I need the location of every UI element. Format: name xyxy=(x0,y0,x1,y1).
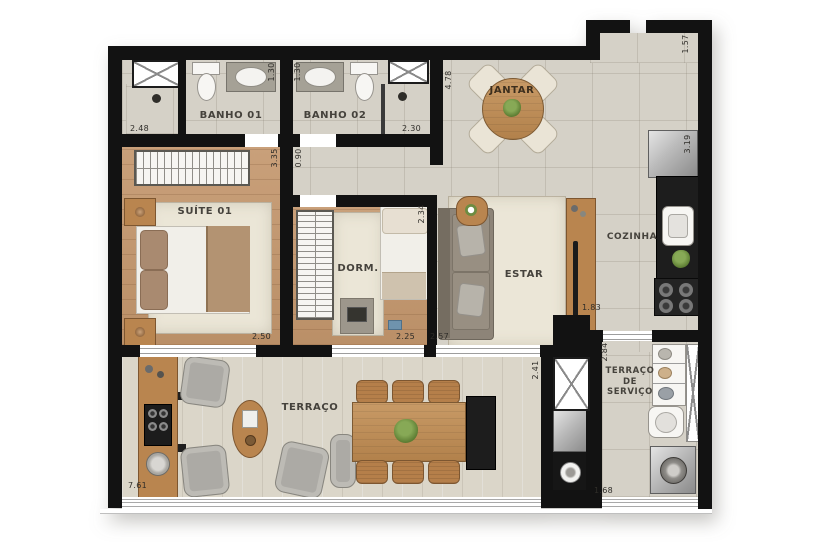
sink-basin xyxy=(235,67,267,87)
dim-jantar-depth: 4.78 xyxy=(444,65,454,95)
sofa-pillow xyxy=(456,283,486,318)
washing-machine xyxy=(650,446,696,494)
room-label-banho01: BANHO 01 xyxy=(196,110,266,123)
wall xyxy=(280,134,293,357)
decor-icon xyxy=(580,211,586,217)
terrace-sink-cabinet xyxy=(553,452,586,492)
wall xyxy=(108,345,140,357)
bed-pillow xyxy=(140,270,168,310)
wall xyxy=(586,20,600,60)
dim-suite-width: 2.50 xyxy=(252,332,271,341)
decor-icon xyxy=(571,205,578,212)
slab-edge xyxy=(100,509,712,514)
wall xyxy=(698,20,712,512)
sliding-door xyxy=(332,345,424,357)
burner-icon xyxy=(679,283,693,297)
banho02-door-opening xyxy=(300,134,336,147)
shower-partition xyxy=(381,84,385,134)
coffee-table xyxy=(232,400,268,458)
laundry-sink xyxy=(648,406,684,438)
dim-suite-right-depth: 3.35 xyxy=(270,143,280,173)
dim-servico-depth: 2.84 xyxy=(600,337,610,367)
burner-icon xyxy=(159,422,168,431)
service-door-sill xyxy=(603,331,652,341)
dim-banho02-shower-width: 2.30 xyxy=(402,124,421,133)
lamp-icon xyxy=(135,327,145,337)
burner-icon xyxy=(679,299,693,313)
dorm-desk xyxy=(340,298,374,334)
room-label-cozinha: COZINHA xyxy=(604,232,660,243)
terrace-appliance xyxy=(553,410,588,452)
room-label-dorm: DORM. xyxy=(333,263,383,276)
sink-basin xyxy=(304,67,336,87)
room-label-suite01: SUÍTE 01 xyxy=(165,206,245,219)
nightstand xyxy=(124,318,156,346)
wall xyxy=(256,345,332,357)
shaft xyxy=(132,60,182,88)
dim-banho02-depth: 1.30 xyxy=(293,57,303,87)
room-label-terraco: TERRAÇO xyxy=(278,402,342,415)
dim-terraco-width: 7.61 xyxy=(128,481,147,490)
lounge-chair xyxy=(180,444,231,499)
terrace-chair xyxy=(428,380,460,404)
burner-icon xyxy=(659,283,673,297)
dim-estar-width: 2.57 xyxy=(430,332,449,341)
burner-icon xyxy=(159,409,168,418)
sofa-pillow xyxy=(456,222,486,257)
shower-head-icon xyxy=(152,94,161,103)
room-label-terraco-servico: TERRAÇO DE SERVIÇO xyxy=(598,366,662,398)
round-sink-icon xyxy=(560,462,581,483)
room-label-estar: ESTAR xyxy=(498,269,550,282)
toilet-bowl xyxy=(355,73,374,101)
terrace-chair xyxy=(392,460,424,484)
room-label-line: TERRAÇO DE xyxy=(598,366,662,387)
dorm-wardrobe xyxy=(296,210,334,320)
counter-item-icon xyxy=(145,365,153,373)
terrace-chair xyxy=(356,380,388,404)
terrace-chair xyxy=(356,460,388,484)
kitchen-sink xyxy=(662,206,694,246)
shaft xyxy=(388,60,429,84)
sink-basin xyxy=(655,412,677,433)
magazine-icon xyxy=(242,410,258,428)
wall xyxy=(108,46,122,508)
shaft xyxy=(553,357,590,411)
dorm-toy xyxy=(388,320,402,330)
dim-dorm-width: 2.25 xyxy=(396,332,415,341)
basket-icon xyxy=(658,348,672,360)
suite-wardrobe xyxy=(134,150,250,186)
room-label-jantar: JANTAR xyxy=(486,85,538,98)
terrace-counter-sink xyxy=(146,452,170,476)
burner-icon xyxy=(148,409,157,418)
wall xyxy=(424,345,436,357)
bed-blanket xyxy=(382,272,426,299)
wall xyxy=(336,134,433,147)
bathroom-counter xyxy=(296,62,344,92)
wall xyxy=(280,46,293,146)
terrace-chair xyxy=(428,460,460,484)
dorm-door-opening xyxy=(300,195,336,207)
washer-drum-icon xyxy=(660,457,687,484)
lamp-icon xyxy=(135,207,145,217)
bed-blanket xyxy=(206,226,250,312)
dim-cozinha-depth: 3.19 xyxy=(683,129,693,159)
floor-plan: BANHO 01 BANHO 02 SUÍTE 01 DORM. ESTAR J… xyxy=(0,0,838,554)
side-table xyxy=(456,196,488,226)
bed-pillow xyxy=(140,230,168,270)
wall xyxy=(430,60,443,165)
counter-item-icon xyxy=(157,371,164,378)
lounge-chair xyxy=(179,355,231,409)
wall xyxy=(553,315,590,345)
laptop-icon xyxy=(347,307,367,322)
wall xyxy=(652,330,698,342)
service-railing xyxy=(602,497,698,509)
flower-vase-icon xyxy=(465,204,477,216)
terrace-chair xyxy=(392,380,424,404)
burner-icon xyxy=(148,422,157,431)
toilet-bowl xyxy=(197,73,216,101)
burner-icon xyxy=(659,299,673,313)
wall xyxy=(293,195,300,207)
terrace-railing xyxy=(122,497,541,509)
tv-icon xyxy=(573,241,578,325)
room-label-line: SERVIÇO xyxy=(598,387,662,398)
wall xyxy=(178,46,186,146)
dim-cozinha-opening: 1.83 xyxy=(582,303,601,312)
dim-suite-shower-width: 2.48 xyxy=(130,124,149,133)
sliding-door xyxy=(140,345,256,357)
sliding-door xyxy=(436,345,540,357)
wall xyxy=(541,345,553,500)
dim-servico-width: 1.68 xyxy=(594,486,613,495)
dim-entry-width: 1.57 xyxy=(681,29,691,59)
dim-hall-width: 0.90 xyxy=(294,143,304,173)
terrace-grill xyxy=(144,404,172,446)
wall xyxy=(108,134,245,147)
terrace-bench xyxy=(466,396,496,470)
sink-basin xyxy=(668,214,688,238)
wall xyxy=(541,490,602,508)
sofa-backrest xyxy=(438,208,450,338)
nightstand xyxy=(124,198,156,226)
dim-banho01-depth: 1.30 xyxy=(267,57,277,87)
shower-head-icon xyxy=(398,92,407,101)
cup-icon xyxy=(245,435,256,446)
room-label-banho02: BANHO 02 xyxy=(300,110,370,123)
stove xyxy=(654,278,700,316)
dim-terraco-depth: 2.41 xyxy=(531,355,541,385)
dim-dorm-depth: 2.34 xyxy=(417,199,427,229)
